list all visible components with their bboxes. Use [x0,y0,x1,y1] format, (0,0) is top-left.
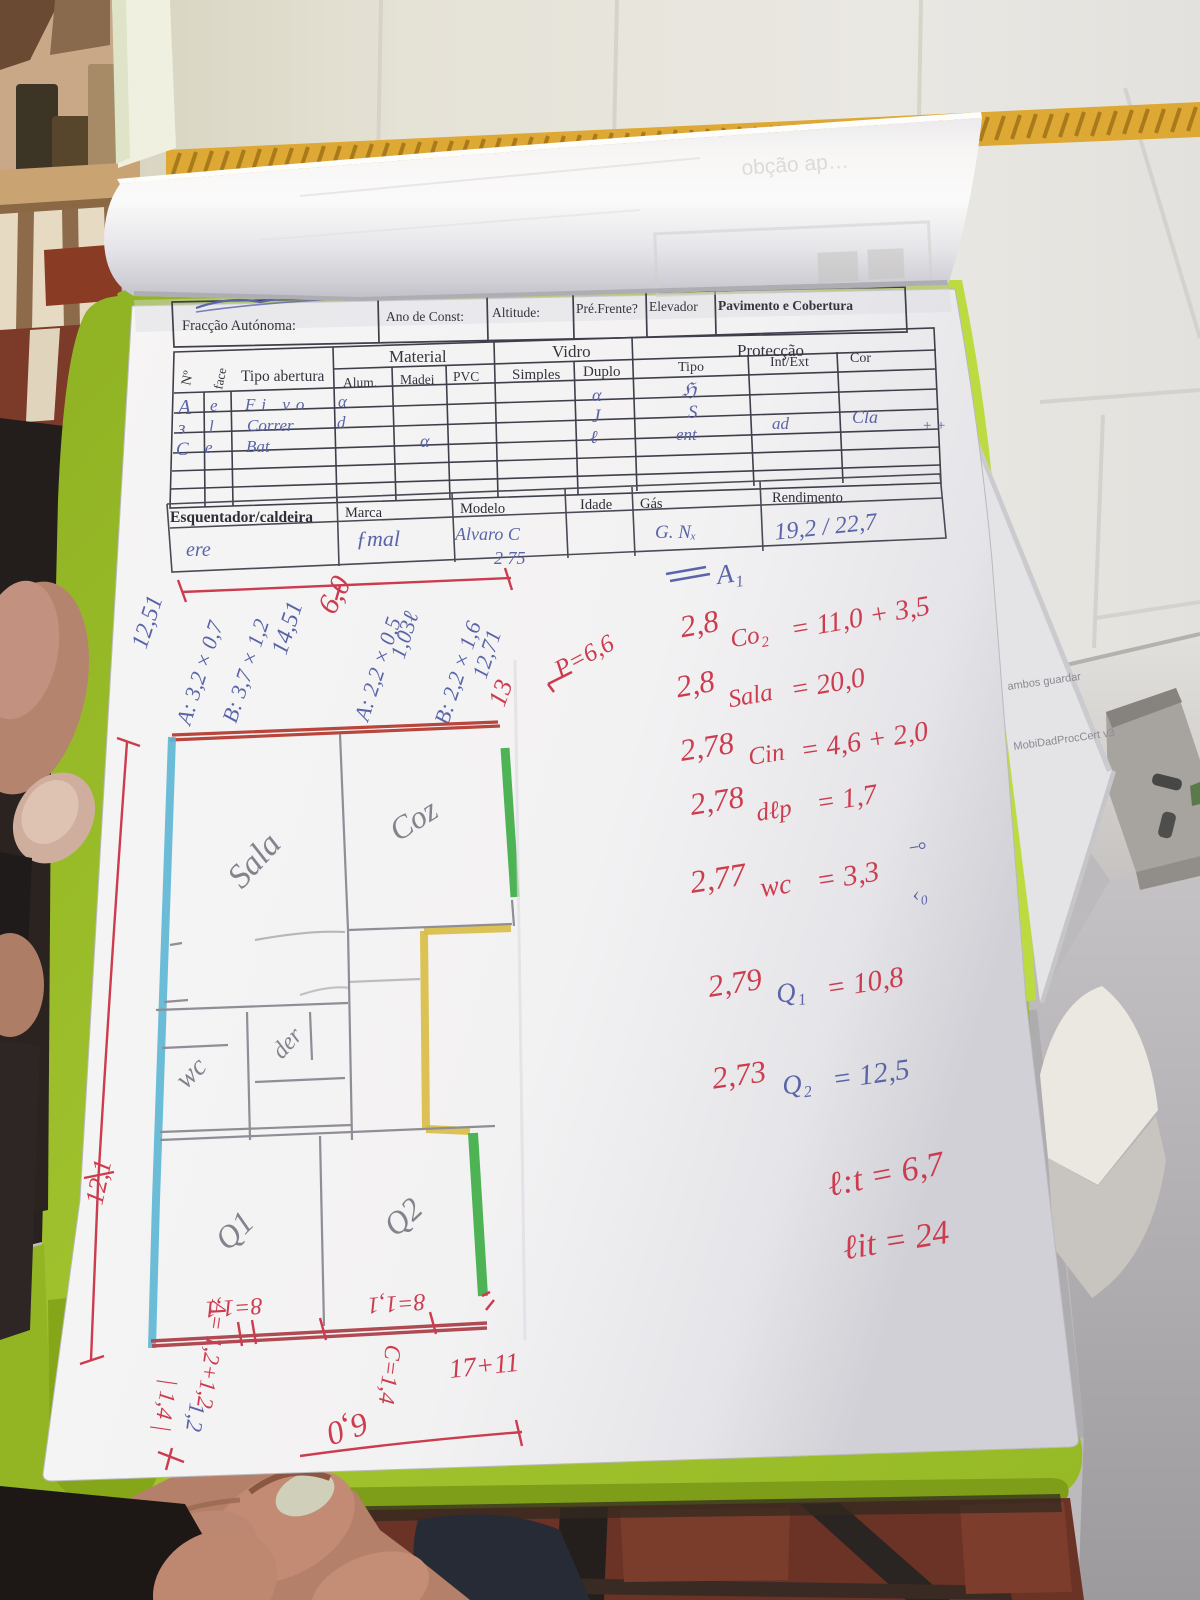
svg-text:Pré.Frente?: Pré.Frente? [576,301,638,316]
svg-text:α: α [420,431,430,451]
svg-text:Pavimento e Cobertura: Pavimento e Cobertura [718,298,853,313]
svg-text:α: α [592,385,602,405]
svg-text:1,2: 1,2 [181,1401,210,1433]
svg-text:8=1,1: 8=1,1 [367,1288,427,1318]
svg-text:Bat: Bat [246,437,271,456]
svg-text:A₁: A₁ [713,557,745,591]
svg-text:G. Nₓ: G. Nₓ [655,522,696,543]
svg-text:A: A [176,395,191,419]
svg-text:C: C [176,439,189,460]
svg-text:Rendimento: Rendimento [772,490,843,506]
svg-text:Ano de Const:: Ano de Const: [386,309,464,324]
svg-text:Simples: Simples [512,367,561,383]
svg-text:Madei: Madei [400,372,435,387]
svg-text:Cin: Cin [746,739,786,771]
svg-text:+ +: + + [922,418,946,434]
svg-text:з: з [177,418,185,439]
svg-text:Idade: Idade [580,497,612,513]
svg-text:Material: Material [389,347,447,366]
svg-text:Int/Ext: Int/Ext [770,355,809,370]
svg-text:Cor: Cor [850,351,871,366]
svg-text:Cla: Cla [852,407,878,427]
svg-text:⁻°: ⁻° [904,836,928,864]
svg-text:wc: wc [758,868,794,904]
svg-text:2,8: 2,8 [677,603,722,644]
svg-text:Q₁: Q₁ [774,975,807,1009]
svg-text:Alvaro C: Alvaro C [454,524,521,544]
svg-text:dℓp: dℓp [754,795,793,827]
svg-text:Duplo: Duplo [583,364,621,380]
svg-text:d: d [337,413,346,432]
svg-text:Elevador: Elevador [649,299,698,314]
svg-text:Marca: Marca [345,505,383,521]
svg-text:Fi vo: Fi vo [244,395,310,414]
svg-text:Fracção Autónoma:: Fracção Autónoma: [182,318,296,334]
svg-text:2 75: 2 75 [494,548,526,568]
svg-text:Altitude:: Altitude: [492,305,540,320]
svg-text:Tipo abertura: Tipo abertura [241,368,324,385]
svg-text:Gás: Gás [640,496,663,512]
svg-text:ere: ere [186,539,211,561]
svg-text:Correr: Correr [247,416,294,435]
svg-text:e: e [205,438,213,457]
svg-text:l: l [209,417,214,436]
svg-text:Vidro: Vidro [552,342,591,361]
svg-text:ad: ad [772,414,790,433]
svg-text:Alum.: Alum. [343,375,377,390]
svg-text:2,8: 2,8 [673,663,718,704]
svg-text:2,73: 2,73 [710,1053,769,1095]
svg-text:Tipo: Tipo [678,360,704,375]
svg-text:ent: ent [676,425,698,444]
svg-text:α: α [338,392,348,411]
svg-text:ℓ: ℓ [590,427,598,447]
svg-text:Q₂: Q₂ [780,1067,813,1101]
svg-text:Esquentador/caldeira: Esquentador/caldeira [170,509,313,526]
svg-text:PVC: PVC [453,369,479,384]
svg-text:S: S [688,402,698,423]
svg-text:ƒmal: ƒmal [356,526,400,551]
svg-text:Modelo: Modelo [460,501,505,517]
svg-text:ℌ: ℌ [682,380,697,401]
svg-text:e: e [210,396,218,415]
